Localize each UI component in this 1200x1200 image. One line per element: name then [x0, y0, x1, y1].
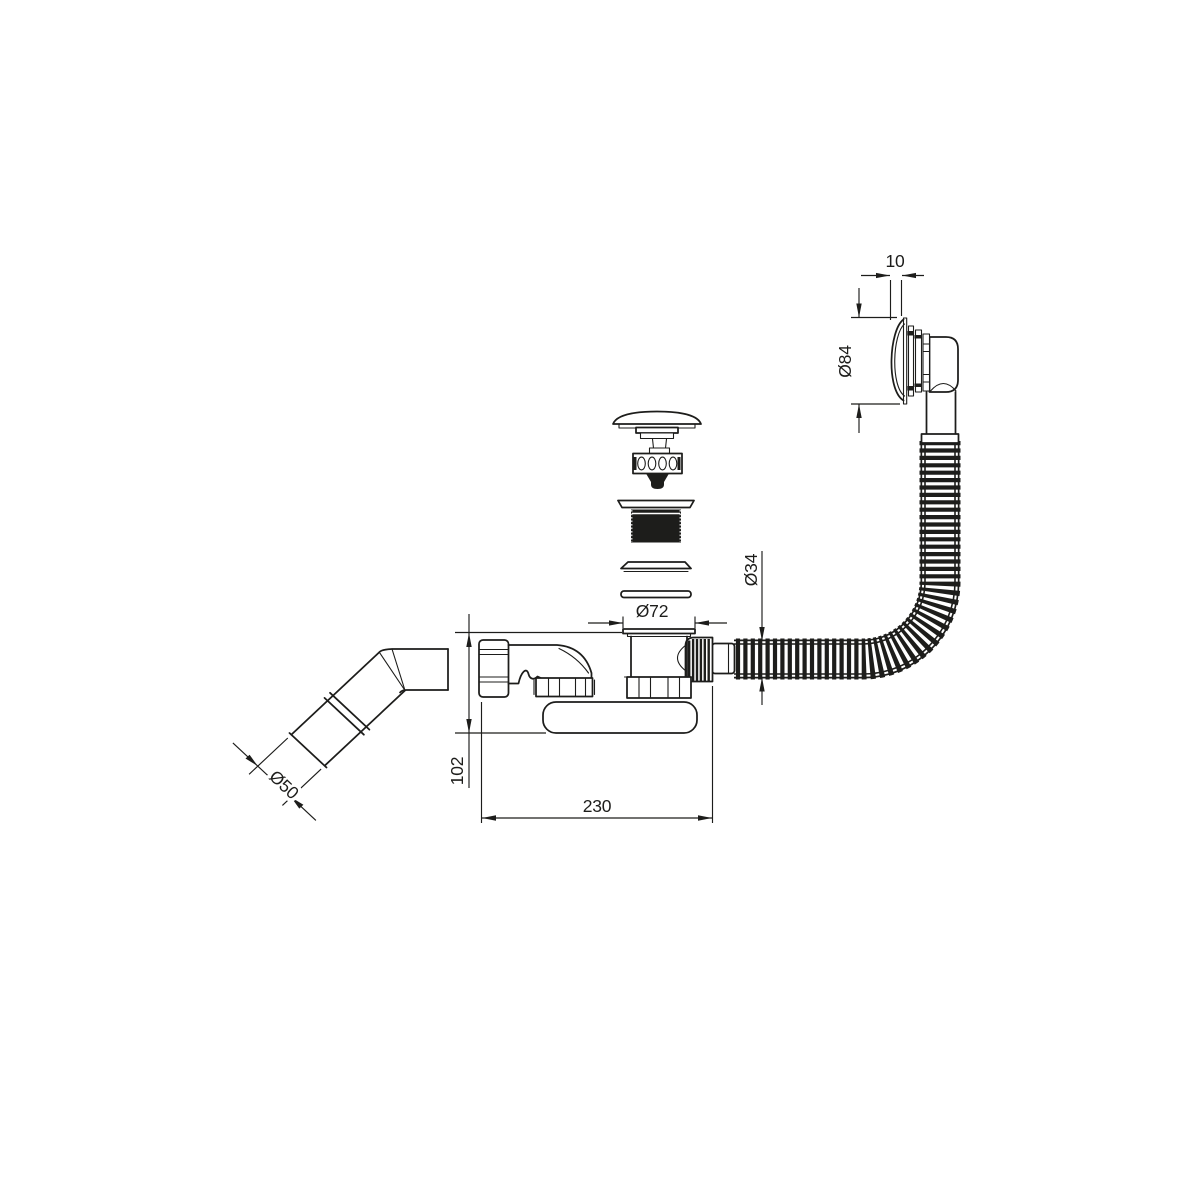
drain-flange: [623, 629, 695, 634]
hose-top-collar: [922, 434, 959, 443]
technical-drawing-canvas: 10 Ø84 Ø34 Ø72 102 230: [0, 0, 1200, 1200]
clip-mark: [915, 335, 923, 339]
bushing-flange: [618, 501, 694, 508]
clip-mark: [908, 331, 915, 336]
overflow-cap-backplate: [904, 318, 907, 404]
trap-shell: [543, 702, 697, 733]
dim-label-d84: Ø84: [835, 345, 855, 378]
clip-mark: [908, 386, 915, 391]
hose-end-sleeve: [712, 644, 735, 674]
inlet-union-nut: [479, 640, 509, 697]
clip-mark: [915, 384, 923, 388]
overflow-plate-middle: [916, 330, 922, 392]
strainer-tab: [678, 457, 681, 470]
dim-label-10: 10: [885, 251, 905, 271]
plug-seal-ring-inner: [641, 433, 674, 439]
canvas-background: [0, 0, 1200, 1200]
strainer-tab: [634, 457, 637, 470]
siphon-trap-body: [543, 702, 697, 733]
flat-gasket-profile: [621, 591, 691, 598]
dim-label-d34: Ø34: [741, 553, 761, 586]
bath-drain-technical-drawing: 10 Ø84 Ø34 Ø72 102 230: [0, 0, 1200, 1200]
flat-gasket: [621, 591, 691, 598]
elbow-union-nut: [536, 678, 593, 697]
dim-label-102: 102: [447, 757, 467, 786]
dim-label-d72: Ø72: [636, 601, 668, 621]
overflow-plate-front: [909, 326, 914, 396]
drain-lock-nut: [627, 677, 691, 698]
plug-seal-ring: [636, 428, 678, 434]
bushing-thread-body: [631, 510, 681, 543]
plug-cone-nub: [651, 482, 664, 489]
plug-strainer-body: [633, 454, 682, 474]
dim-label-230: 230: [583, 796, 612, 816]
